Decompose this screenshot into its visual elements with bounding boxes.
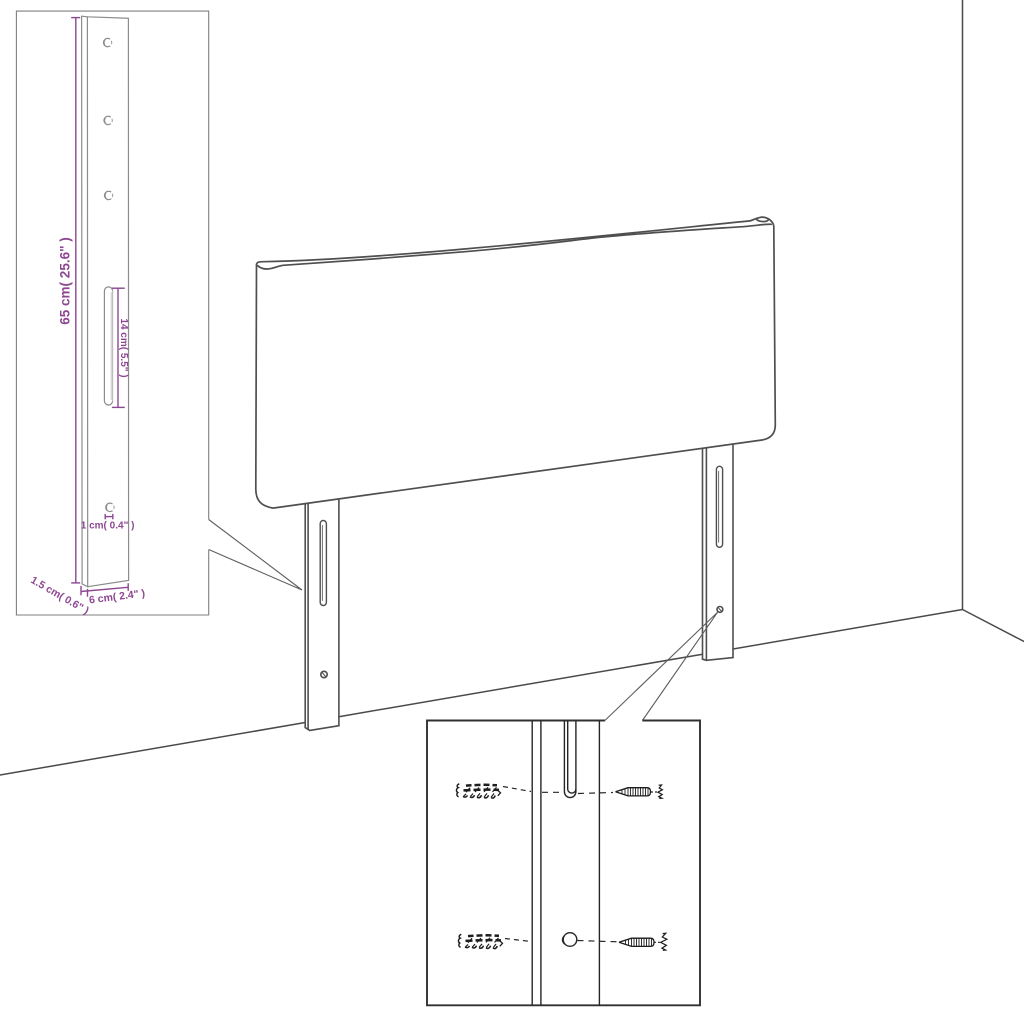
svg-text:65 cm( 25.6" ): 65 cm( 25.6" ) (58, 237, 73, 324)
svg-text:1 cm( 0.4" ): 1 cm( 0.4" ) (81, 521, 135, 532)
svg-text:14 cm( 5.5" ): 14 cm( 5.5" ) (118, 318, 129, 377)
